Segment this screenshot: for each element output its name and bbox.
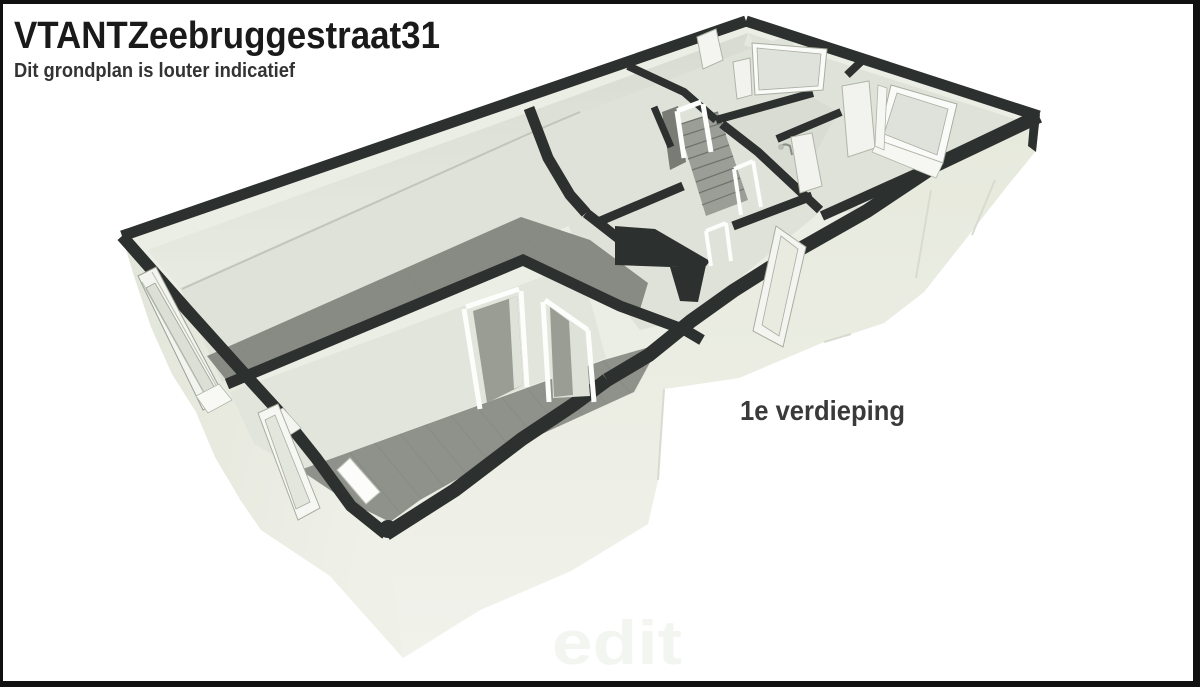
svg-text:edit: edit	[552, 609, 682, 678]
svg-text:VTANTZeebruggestraat31: VTANTZeebruggestraat31	[14, 15, 440, 57]
svg-text:Dit grondplan is louter indica: Dit grondplan is louter indicatief	[14, 60, 295, 82]
svg-text:1e verdieping: 1e verdieping	[740, 395, 905, 426]
